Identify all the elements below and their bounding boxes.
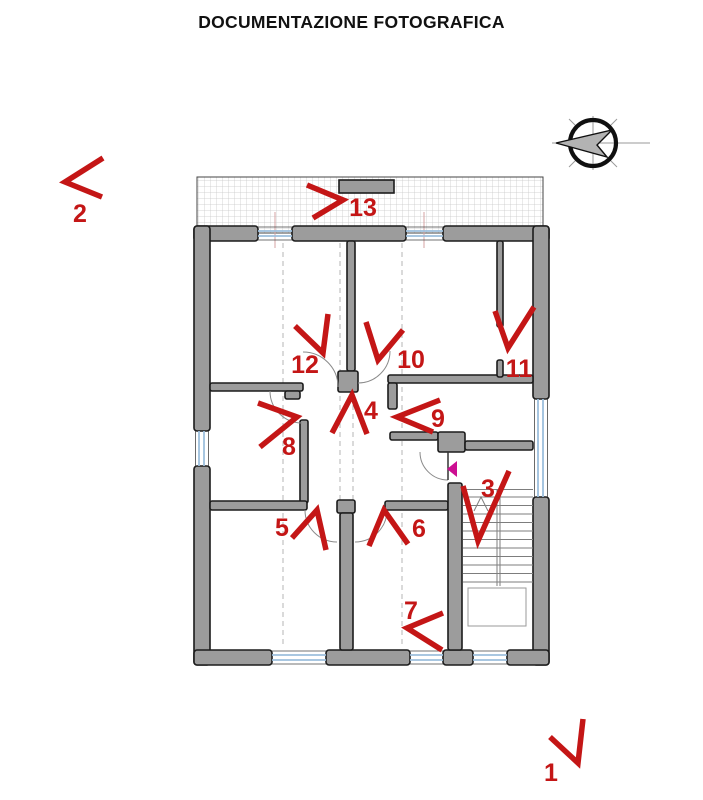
photo-marker-9: 9 <box>397 400 445 433</box>
photo-marker-number-12: 12 <box>291 351 319 379</box>
photo-marker-1: 1 <box>544 719 583 787</box>
photo-marker-number-11: 11 <box>506 355 533 383</box>
photo-marker-arrow-4 <box>332 395 367 434</box>
photo-marker-number-1: 1 <box>544 759 558 787</box>
floor-plan: 12345678910111213 <box>0 0 703 800</box>
photo-marker-8: 8 <box>258 403 297 461</box>
photo-marker-arrow-1 <box>550 719 583 763</box>
staircase <box>463 490 533 627</box>
photo-marker-number-4: 4 <box>364 397 378 425</box>
interior-walls <box>210 241 533 650</box>
photo-marker-number-6: 6 <box>412 515 426 543</box>
photo-marker-12: 12 <box>291 314 328 379</box>
photo-marker-4: 4 <box>332 395 378 434</box>
photo-marker-number-13: 13 <box>349 194 377 222</box>
photo-marker-6: 6 <box>369 510 426 546</box>
photo-marker-number-2: 2 <box>73 200 87 228</box>
photo-markers: 12345678910111213 <box>65 158 583 787</box>
photo-marker-number-10: 10 <box>397 346 425 374</box>
photo-marker-number-8: 8 <box>282 433 296 461</box>
photo-marker-number-9: 9 <box>431 405 445 433</box>
photo-marker-7: 7 <box>404 597 443 650</box>
photo-marker-10: 10 <box>366 322 425 374</box>
photo-marker-arrow-2 <box>65 158 103 197</box>
photo-marker-number-3: 3 <box>481 475 495 503</box>
photo-marker-arrow-12 <box>295 314 328 353</box>
photo-marker-2: 2 <box>65 158 103 228</box>
photo-marker-number-7: 7 <box>404 597 418 625</box>
photo-marker-number-5: 5 <box>275 514 289 542</box>
photo-marker-arrow-5 <box>292 510 326 550</box>
balcony-planter <box>339 180 394 193</box>
photo-documentation-page: DOCUMENTAZIONE FOTOGRAFICA <box>0 0 703 800</box>
north-arrow-icon <box>552 116 650 170</box>
